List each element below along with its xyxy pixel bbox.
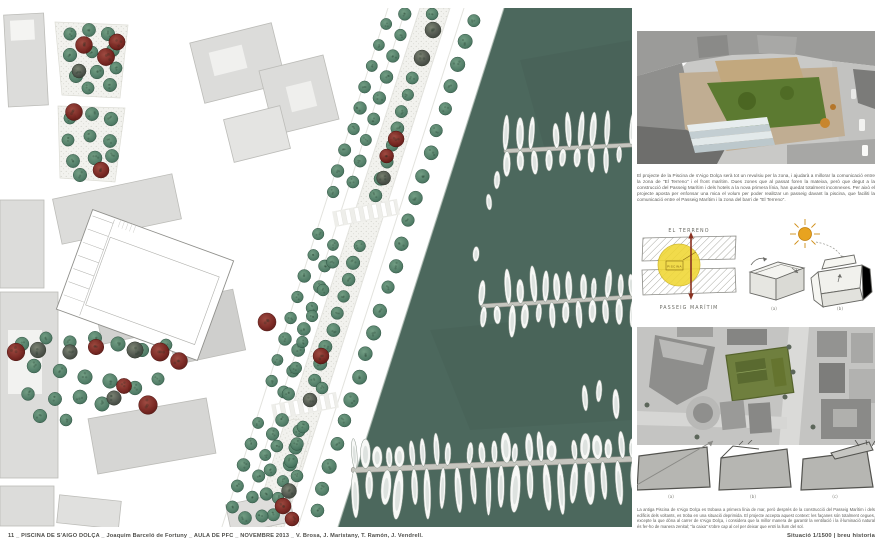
site-photo-fisheye bbox=[637, 31, 875, 164]
diagram-top-label: EL TERRENO bbox=[668, 228, 709, 234]
diagram-bottom-label: PASSEIG MARÍTIM bbox=[660, 304, 719, 311]
section-sketch-c bbox=[801, 440, 875, 490]
open-box-sketch bbox=[811, 255, 872, 307]
section-label-c: (c) bbox=[832, 494, 838, 499]
section-sketch-b bbox=[719, 440, 791, 490]
section-label-a: (a) bbox=[668, 494, 674, 499]
highlighted-site bbox=[726, 347, 794, 401]
diagram-circle-label: PISCINA bbox=[667, 265, 682, 269]
section-label-b: (b) bbox=[750, 494, 756, 499]
presentation-board: El projecte de la Piscina de s'Aigo Dolç… bbox=[0, 0, 882, 548]
site-concept-diagram: EL TERRENO PISCINA PASSEIG MARÍTIM bbox=[639, 222, 739, 314]
car bbox=[862, 145, 868, 156]
site-plan-map bbox=[0, 0, 632, 548]
concept-box-sketches: (a) (b) bbox=[742, 216, 874, 314]
footer-project-title: 11 _ PISCINA DE S'AIGO DOLÇA _ Joaquim B… bbox=[8, 533, 423, 539]
section-sketch-a bbox=[637, 441, 713, 490]
box-label-a: (a) bbox=[771, 306, 777, 311]
closed-box-sketch bbox=[750, 257, 804, 300]
box-label-b: (b) bbox=[837, 306, 843, 311]
history-paragraph: La antiga Piscina de s'Aigo Dolça es tro… bbox=[637, 507, 875, 529]
intro-paragraph: El projecte de la Piscina de s'Aigo Dolç… bbox=[637, 173, 875, 204]
section-sketches: (a) (b) (c) bbox=[637, 440, 875, 502]
footer-sheet-label: Situació 1/1500 | breu historia bbox=[787, 533, 875, 539]
car bbox=[851, 89, 856, 99]
car bbox=[859, 119, 865, 131]
sun-icon bbox=[790, 219, 820, 248]
aerial-photo bbox=[637, 327, 875, 445]
